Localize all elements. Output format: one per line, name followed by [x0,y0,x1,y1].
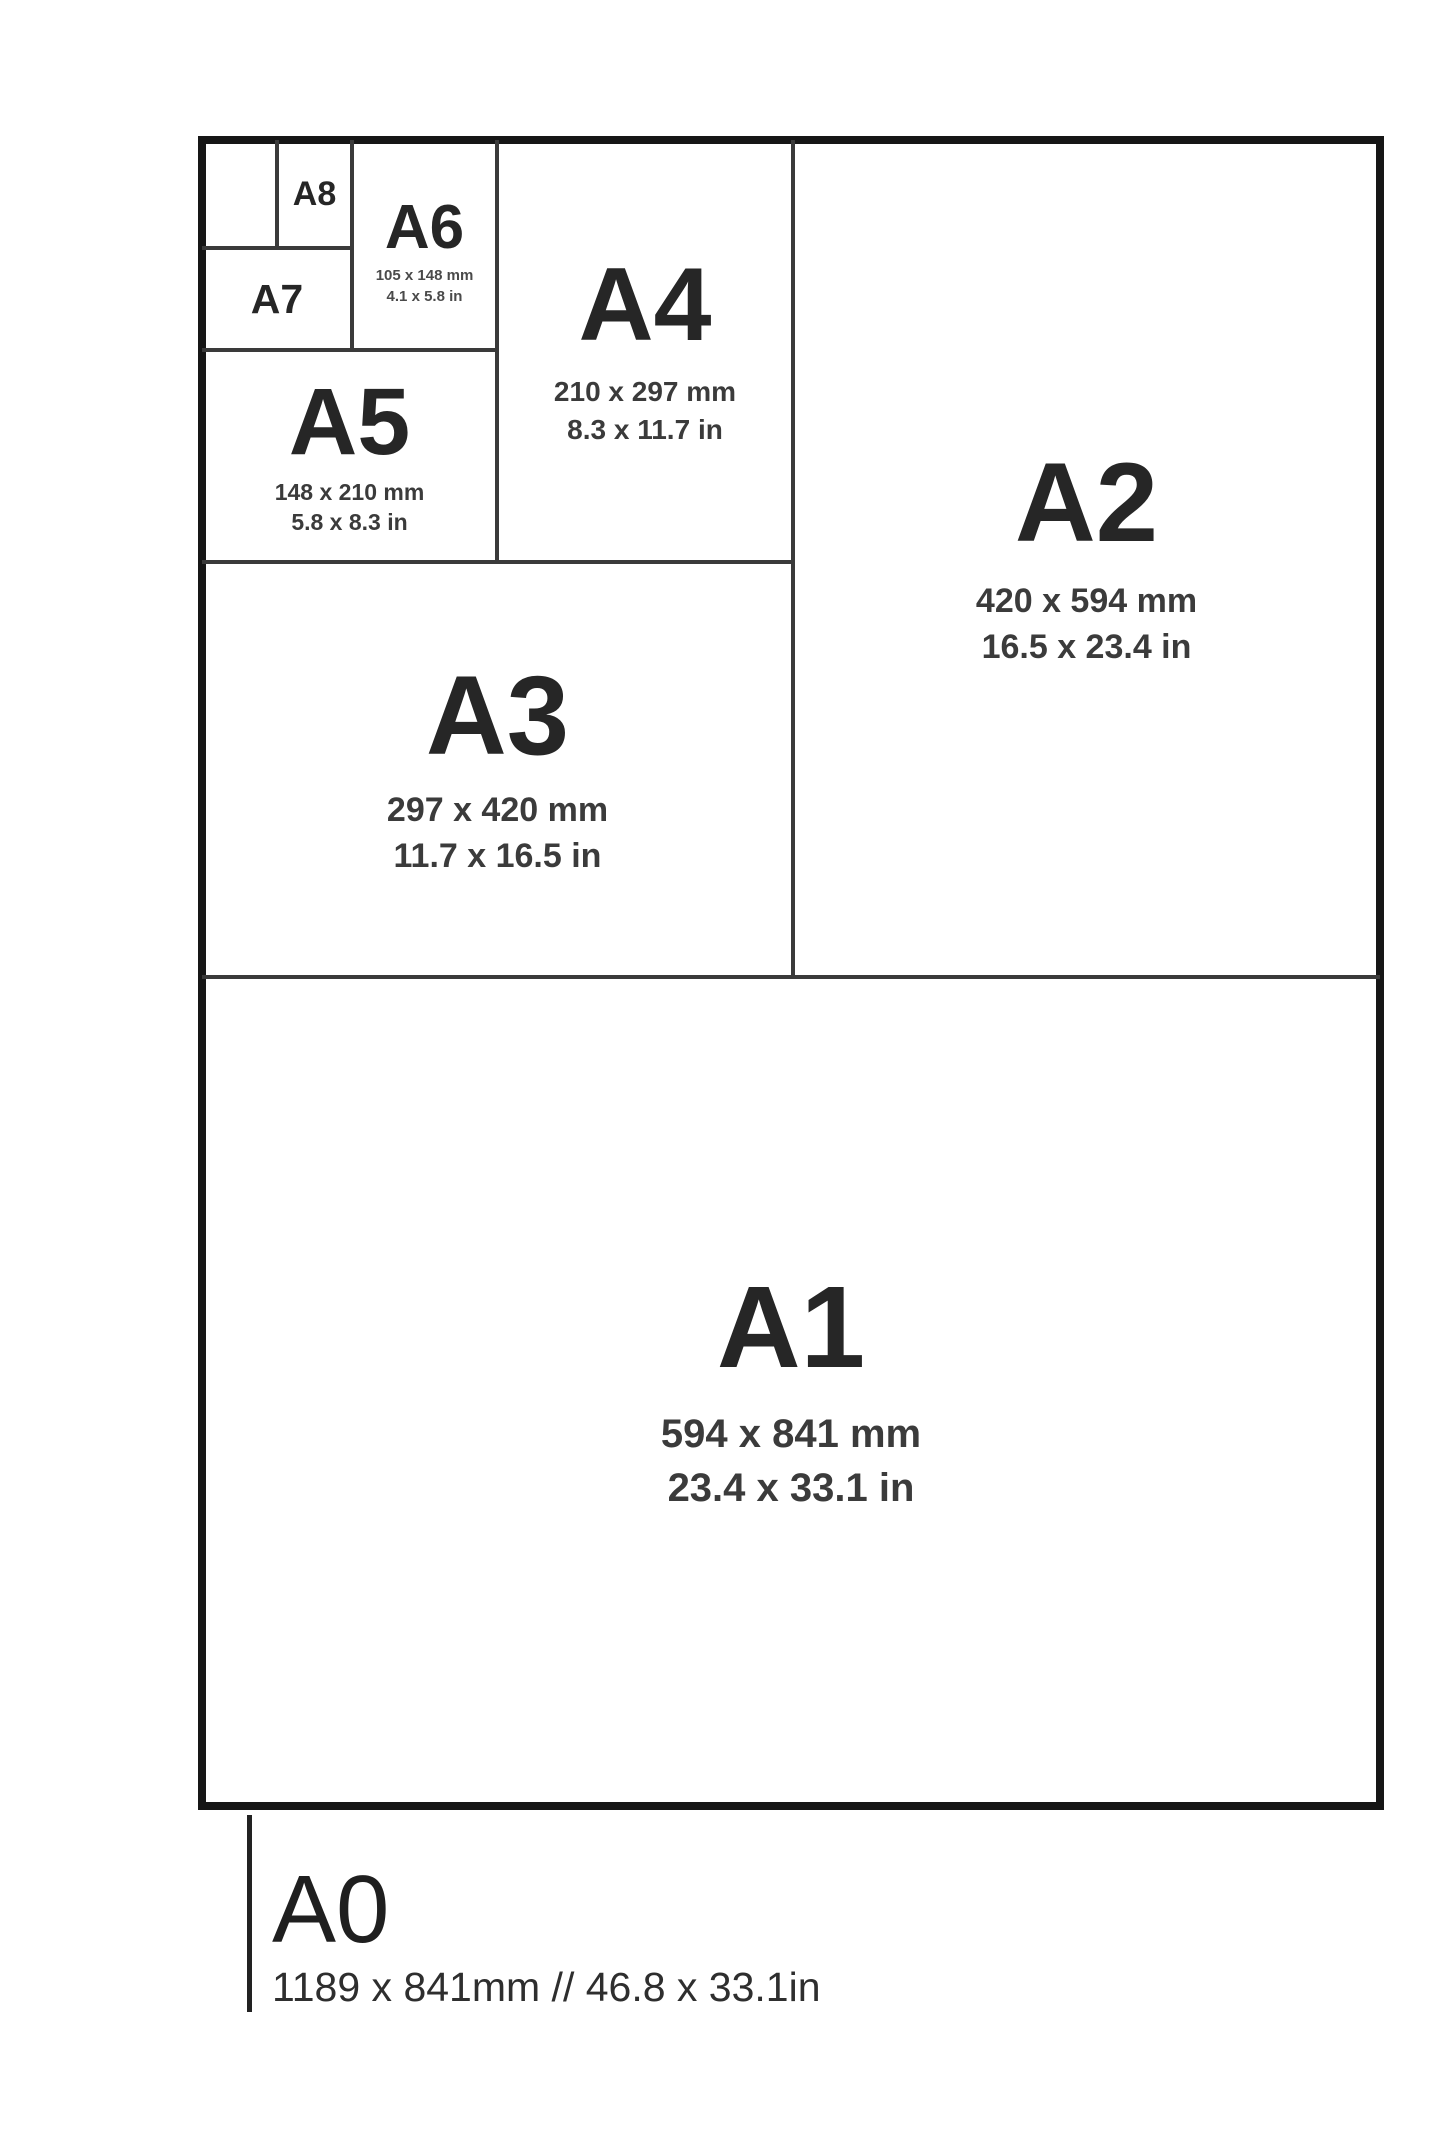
a5-dimensions-in: 5.8 x 8.3 in [275,508,425,538]
a1-dimensions: 594 x 841 mm 23.4 x 33.1 in [661,1407,921,1515]
a1-region: A1 594 x 841 mm 23.4 x 33.1 in [202,977,1380,1806]
a4-dimensions-mm: 210 x 297 mm [554,373,736,411]
a0-dimensions: 1189 x 841mm // 46.8 x 33.1in [272,1964,821,2011]
a7-label: A7 [251,279,303,320]
a1-dimensions-mm: 594 x 841 mm [661,1407,921,1461]
a3-dimensions: 297 x 420 mm 11.7 x 16.5 in [387,788,608,880]
a4-region: A4 210 x 297 mm 8.3 x 11.7 in [497,140,793,562]
a5-dimensions: 148 x 210 mm 5.8 x 8.3 in [275,478,425,538]
a2-region: A2 420 x 594 mm 16.5 x 23.4 in [793,140,1380,977]
a5-dimensions-mm: 148 x 210 mm [275,478,425,508]
a2-dimensions-mm: 420 x 594 mm [976,579,1197,625]
a2-dimensions-in: 16.5 x 23.4 in [976,625,1197,671]
a6-dimensions-mm: 105 x 148 mm [376,266,474,286]
a8-label: A8 [293,177,336,211]
a5-region: A5 148 x 210 mm 5.8 x 8.3 in [202,350,497,562]
a4-dimensions-in: 8.3 x 11.7 in [554,411,736,449]
a4-label: A4 [579,253,712,357]
a3-dimensions-mm: 297 x 420 mm [387,788,608,834]
a1-label: A1 [717,1269,865,1385]
a7-region: A7 [202,248,352,350]
a0-label: A0 [272,1862,821,1958]
a1-dimensions-in: 23.4 x 33.1 in [661,1461,921,1515]
a5-label: A5 [289,375,410,470]
a6-dimensions-in: 4.1 x 5.8 in [376,287,474,307]
a6-region: A6 105 x 148 mm 4.1 x 5.8 in [352,140,497,350]
a0-caption: A0 1189 x 841mm // 46.8 x 33.1in [272,1862,821,2011]
a6-label: A6 [385,197,464,259]
a2-dimensions: 420 x 594 mm 16.5 x 23.4 in [976,579,1197,671]
a8-region: A8 [277,140,352,248]
a2-label: A2 [1015,447,1158,559]
a0-indicator-line [247,1815,252,2012]
a3-label: A3 [426,660,569,772]
a6-dimensions: 105 x 148 mm 4.1 x 5.8 in [376,266,474,307]
a3-region: A3 297 x 420 mm 11.7 x 16.5 in [202,562,793,977]
paper-sizes-diagram: A8 A7 A6 105 x 148 mm 4.1 x 5.8 in A5 14… [0,0,1445,2141]
a4-dimensions: 210 x 297 mm 8.3 x 11.7 in [554,373,736,449]
a3-dimensions-in: 11.7 x 16.5 in [387,834,608,880]
